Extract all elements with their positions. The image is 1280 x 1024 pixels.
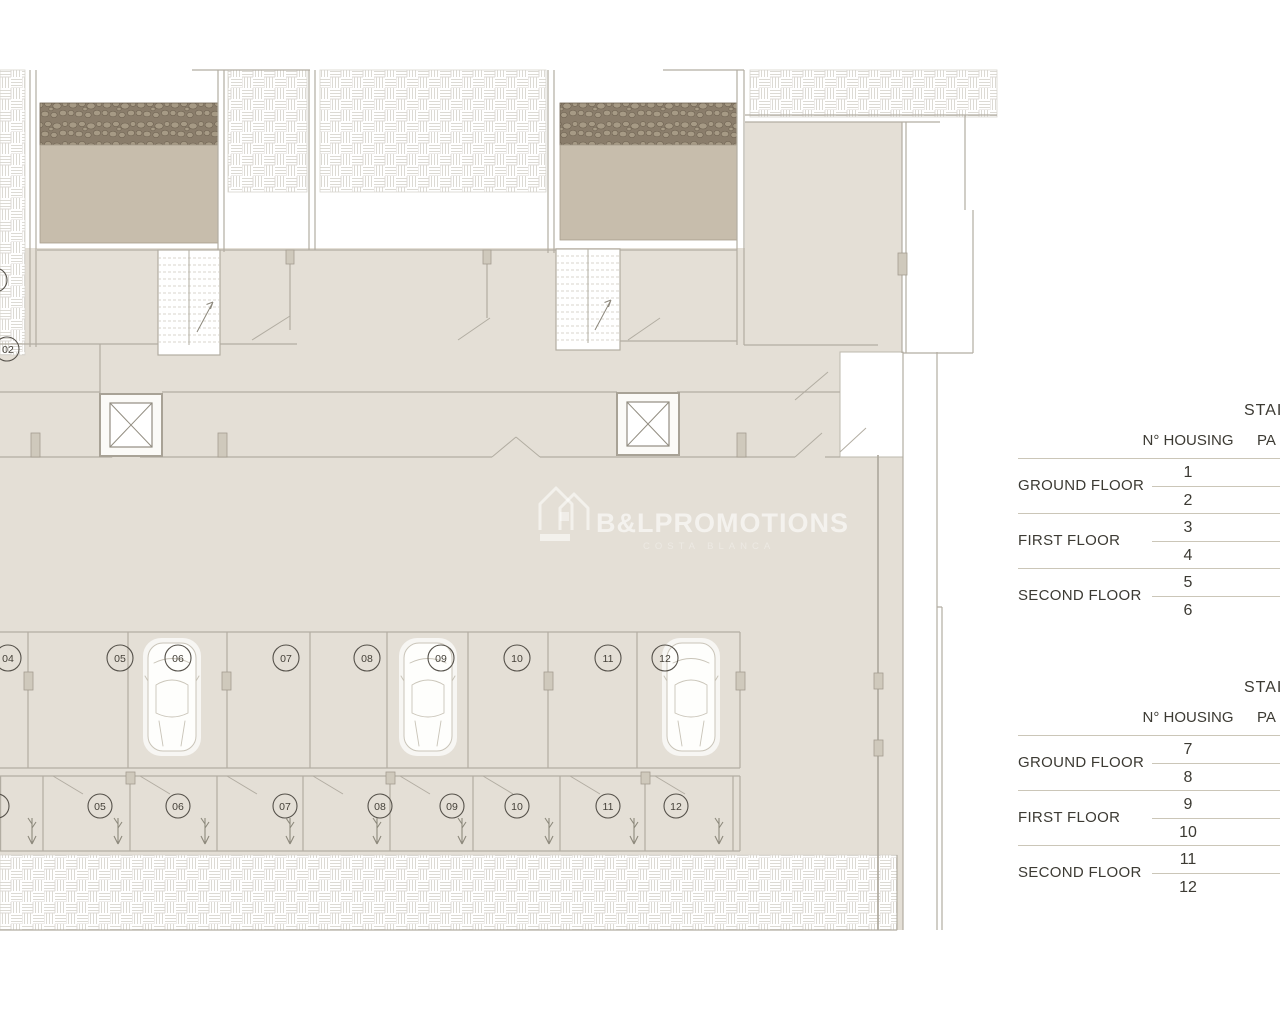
housing-unit: 1: [1158, 459, 1218, 486]
floor-label-second: SECOND FLOOR: [1018, 568, 1142, 623]
housing-unit: 5: [1158, 569, 1218, 596]
housing-unit: 10: [1158, 819, 1218, 846]
hatch-left-strip: [0, 70, 25, 355]
housing-column-header: N° HOUSING: [1133, 432, 1243, 449]
housing-unit: 6: [1158, 597, 1218, 624]
floor-label-first: FIRST FLOOR: [1018, 790, 1120, 845]
svg-text:07: 07: [280, 653, 292, 665]
parking-column-header: PA: [1257, 709, 1276, 726]
terrace-right: [560, 145, 737, 240]
svg-text:10: 10: [511, 653, 523, 665]
svg-text:09: 09: [435, 653, 447, 665]
housing-unit: 11: [1158, 846, 1218, 873]
watermark-brand: B&LPROMOTIONS: [596, 508, 849, 538]
parking-column-header: PA: [1257, 432, 1276, 449]
table-title: STAI: [1244, 402, 1280, 420]
svg-text:05: 05: [114, 653, 126, 665]
side-corridor: [903, 352, 937, 930]
stair-table-1: STAI N° HOUSING PA GROUND FLOOR 1 2 FIRS…: [1018, 404, 1280, 634]
svg-text:06: 06: [172, 653, 184, 665]
housing-unit: 12: [1158, 874, 1218, 901]
hatch-top-large: [320, 70, 546, 192]
floor-label-first: FIRST FLOOR: [1018, 513, 1120, 568]
svg-text:09: 09: [446, 801, 458, 813]
elevator-right: [617, 393, 679, 455]
table-title: STAI: [1244, 679, 1280, 697]
housing-unit: 4: [1158, 542, 1218, 569]
rubble-band-left: [40, 103, 218, 145]
lightwell: [840, 352, 903, 457]
svg-text:11: 11: [603, 653, 614, 665]
hatch-bottom-band: [0, 855, 897, 930]
svg-text:04: 04: [2, 653, 14, 665]
floor-label-second: SECOND FLOOR: [1018, 845, 1142, 900]
svg-text:11: 11: [603, 801, 614, 813]
floor-label-ground: GROUND FLOOR: [1018, 458, 1144, 513]
housing-unit: 8: [1158, 764, 1218, 791]
svg-text:08: 08: [374, 801, 386, 813]
stair-table-2: STAI N° HOUSING PA GROUND FLOOR 7 8 FIRS…: [1018, 681, 1280, 911]
svg-text:05: 05: [94, 801, 106, 813]
stairwell-right: [556, 249, 620, 350]
watermark-subtitle: COSTA BLANCA: [643, 541, 775, 552]
svg-text:12: 12: [659, 653, 671, 665]
housing-unit: 9: [1158, 791, 1218, 818]
svg-text:08: 08: [361, 653, 373, 665]
terrace-left: [40, 145, 218, 243]
rubble-band-right: [560, 103, 737, 145]
hatch-top-right: [750, 70, 997, 117]
svg-text:10: 10: [511, 801, 523, 813]
floor-label-ground: GROUND FLOOR: [1018, 735, 1144, 790]
svg-text:02: 02: [2, 344, 14, 356]
elevator-left: [100, 394, 162, 456]
housing-unit: 3: [1158, 514, 1218, 541]
housing-unit: 7: [1158, 736, 1218, 763]
svg-text:06: 06: [172, 801, 184, 813]
hatch-top-small: [228, 70, 307, 192]
svg-text:12: 12: [670, 801, 682, 813]
housing-unit: 2: [1158, 487, 1218, 514]
housing-column-header: N° HOUSING: [1133, 709, 1243, 726]
svg-text:07: 07: [279, 801, 291, 813]
stairwell-left: [158, 250, 220, 355]
